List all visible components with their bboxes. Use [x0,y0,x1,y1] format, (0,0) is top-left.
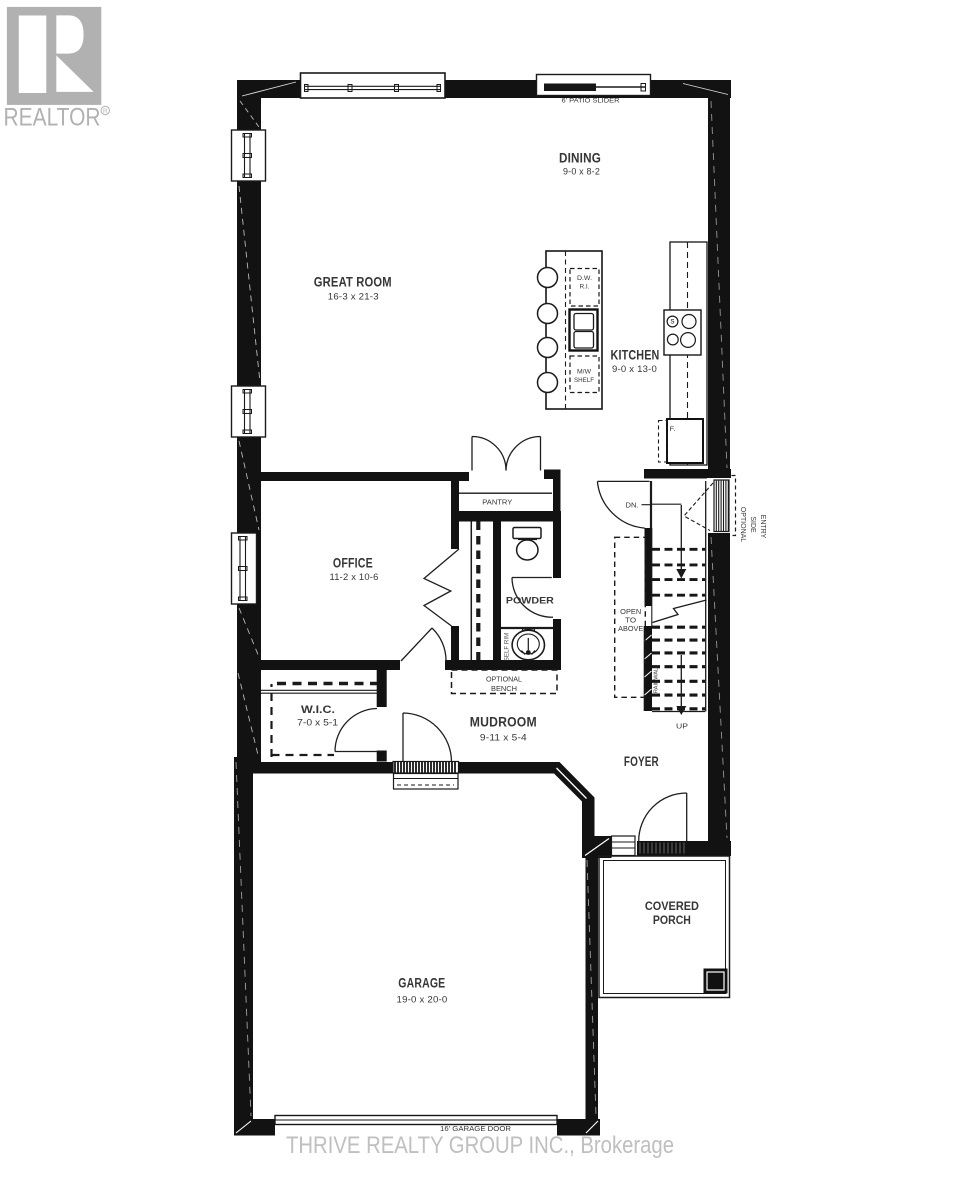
svg-text:F.: F. [670,426,676,433]
svg-text:PORCH: PORCH [653,915,691,927]
svg-text:REALTOR: REALTOR [4,104,101,132]
svg-text:FOYER: FOYER [624,754,659,769]
svg-text:UP: UP [676,724,688,731]
svg-text:DINING: DINING [559,151,601,166]
svg-text:SELF RIM: SELF RIM [504,633,511,662]
svg-text:6' PATIO SLIDER: 6' PATIO SLIDER [562,98,621,105]
svg-text:16-3 x 21-3: 16-3 x 21-3 [328,292,379,303]
svg-text:19-0 x 20-0: 19-0 x 20-0 [397,995,448,1006]
svg-text:ABOVE: ABOVE [618,626,643,633]
svg-text:KITCHEN: KITCHEN [611,348,660,363]
svg-text:BENCH: BENCH [491,686,517,693]
svg-text:SIDE: SIDE [749,516,756,533]
svg-text:DN.: DN. [626,503,639,510]
svg-text:MUDROOM: MUDROOM [470,715,537,730]
svg-text:COVERED: COVERED [645,901,699,913]
svg-text:S: S [670,319,674,326]
svg-text:SHELF: SHELF [574,377,594,384]
svg-text:7-0 x 5-1: 7-0 x 5-1 [297,718,338,728]
svg-text:9-0 x 8-2: 9-0 x 8-2 [563,167,600,178]
svg-text:M/W: M/W [577,369,591,376]
svg-text:TO: TO [625,618,637,625]
svg-text:11-2 x 10-6: 11-2 x 10-6 [330,572,379,583]
svg-text:OFFICE: OFFICE [333,556,373,571]
svg-text:OPTIONAL: OPTIONAL [486,677,522,684]
svg-text:D.W.: D.W. [577,275,592,282]
svg-text:9-11 x 5-4: 9-11 x 5-4 [480,733,527,744]
svg-text:R.I.: R.I. [580,284,590,291]
svg-text:GREAT ROOM: GREAT ROOM [314,275,392,290]
svg-text:OPTIONAL: OPTIONAL [739,507,746,543]
svg-text:POWDER: POWDER [506,596,554,606]
svg-text:9-0 x 13-0: 9-0 x 13-0 [612,364,657,375]
svg-text:W.I.C.: W.I.C. [301,704,335,716]
svg-text:GARAGE: GARAGE [398,976,445,991]
svg-text:RAIL WALL: RAIL WALL [654,665,660,693]
svg-text:R: R [103,108,108,115]
svg-text:ENTRY: ENTRY [759,515,766,539]
svg-text:THRIVE REALTY GROUP INC., Brok: THRIVE REALTY GROUP INC., Brokerage [286,1132,674,1159]
svg-text:PANTRY: PANTRY [482,500,512,507]
svg-text:OPEN: OPEN [620,609,641,616]
